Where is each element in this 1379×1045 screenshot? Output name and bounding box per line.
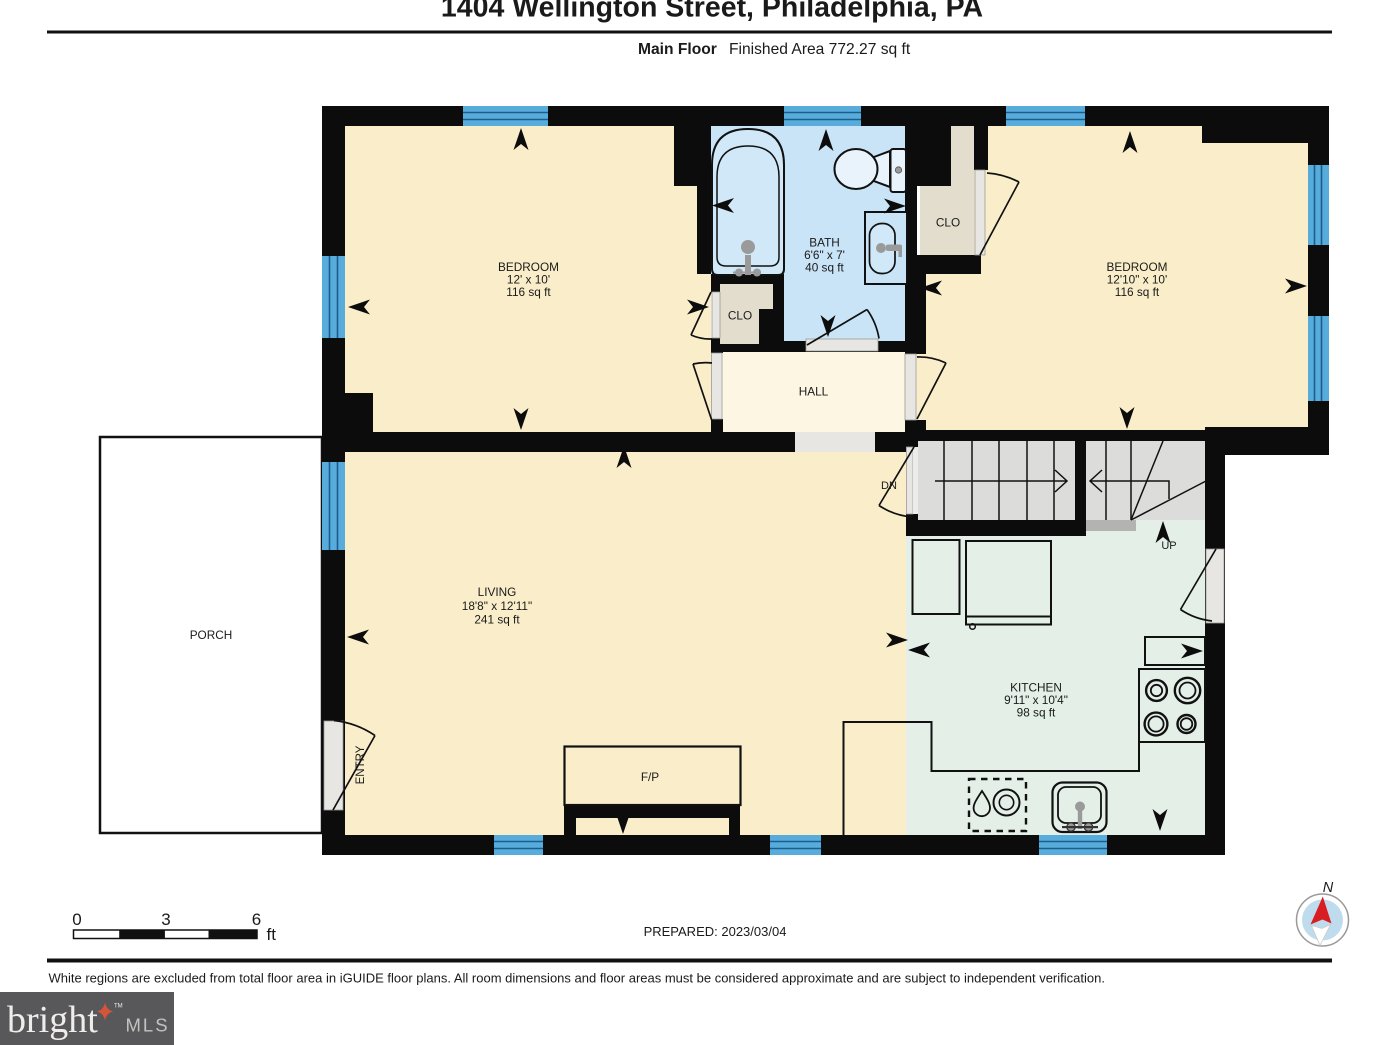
svg-text:MLS: MLS	[126, 1015, 170, 1036]
svg-text:F/P: F/P	[641, 770, 659, 784]
svg-text:CLO: CLO	[728, 309, 752, 323]
svg-text:PREPARED: 2023/03/04: PREPARED: 2023/03/04	[644, 924, 787, 939]
svg-text:bright: bright	[7, 999, 98, 1041]
svg-text:LIVING: LIVING	[478, 585, 517, 599]
svg-text:CLO: CLO	[936, 216, 960, 230]
svg-text:98 sq ft: 98 sq ft	[1017, 706, 1056, 720]
svg-text:ENTRY: ENTRY	[355, 745, 367, 784]
svg-text:Main Floor: Main Floor	[638, 41, 717, 58]
svg-text:ft: ft	[267, 925, 277, 944]
svg-text:HALL: HALL	[799, 385, 829, 399]
svg-text:6: 6	[252, 910, 261, 929]
svg-text:1404 Wellington Street, Philad: 1404 Wellington Street, Philadelphia, PA	[441, 0, 983, 24]
svg-text:0: 0	[72, 910, 81, 929]
svg-text:N: N	[1323, 880, 1334, 896]
svg-text:241 sq ft: 241 sq ft	[474, 613, 520, 627]
svg-text:PORCH: PORCH	[190, 628, 233, 642]
svg-text:116 sq ft: 116 sq ft	[1115, 285, 1160, 299]
svg-text:18'8" x 12'11": 18'8" x 12'11"	[462, 599, 532, 613]
svg-text:TM: TM	[114, 1004, 123, 1010]
svg-text:White regions are excluded fro: White regions are excluded from total fl…	[49, 971, 1105, 986]
svg-text:40 sq ft: 40 sq ft	[805, 261, 844, 275]
svg-text:DN: DN	[881, 480, 897, 492]
svg-text:UP: UP	[1161, 540, 1176, 552]
svg-text:3: 3	[161, 910, 170, 929]
svg-text:Finished Area 772.27 sq ft: Finished Area 772.27 sq ft	[729, 41, 911, 58]
svg-text:116 sq ft: 116 sq ft	[506, 285, 551, 299]
